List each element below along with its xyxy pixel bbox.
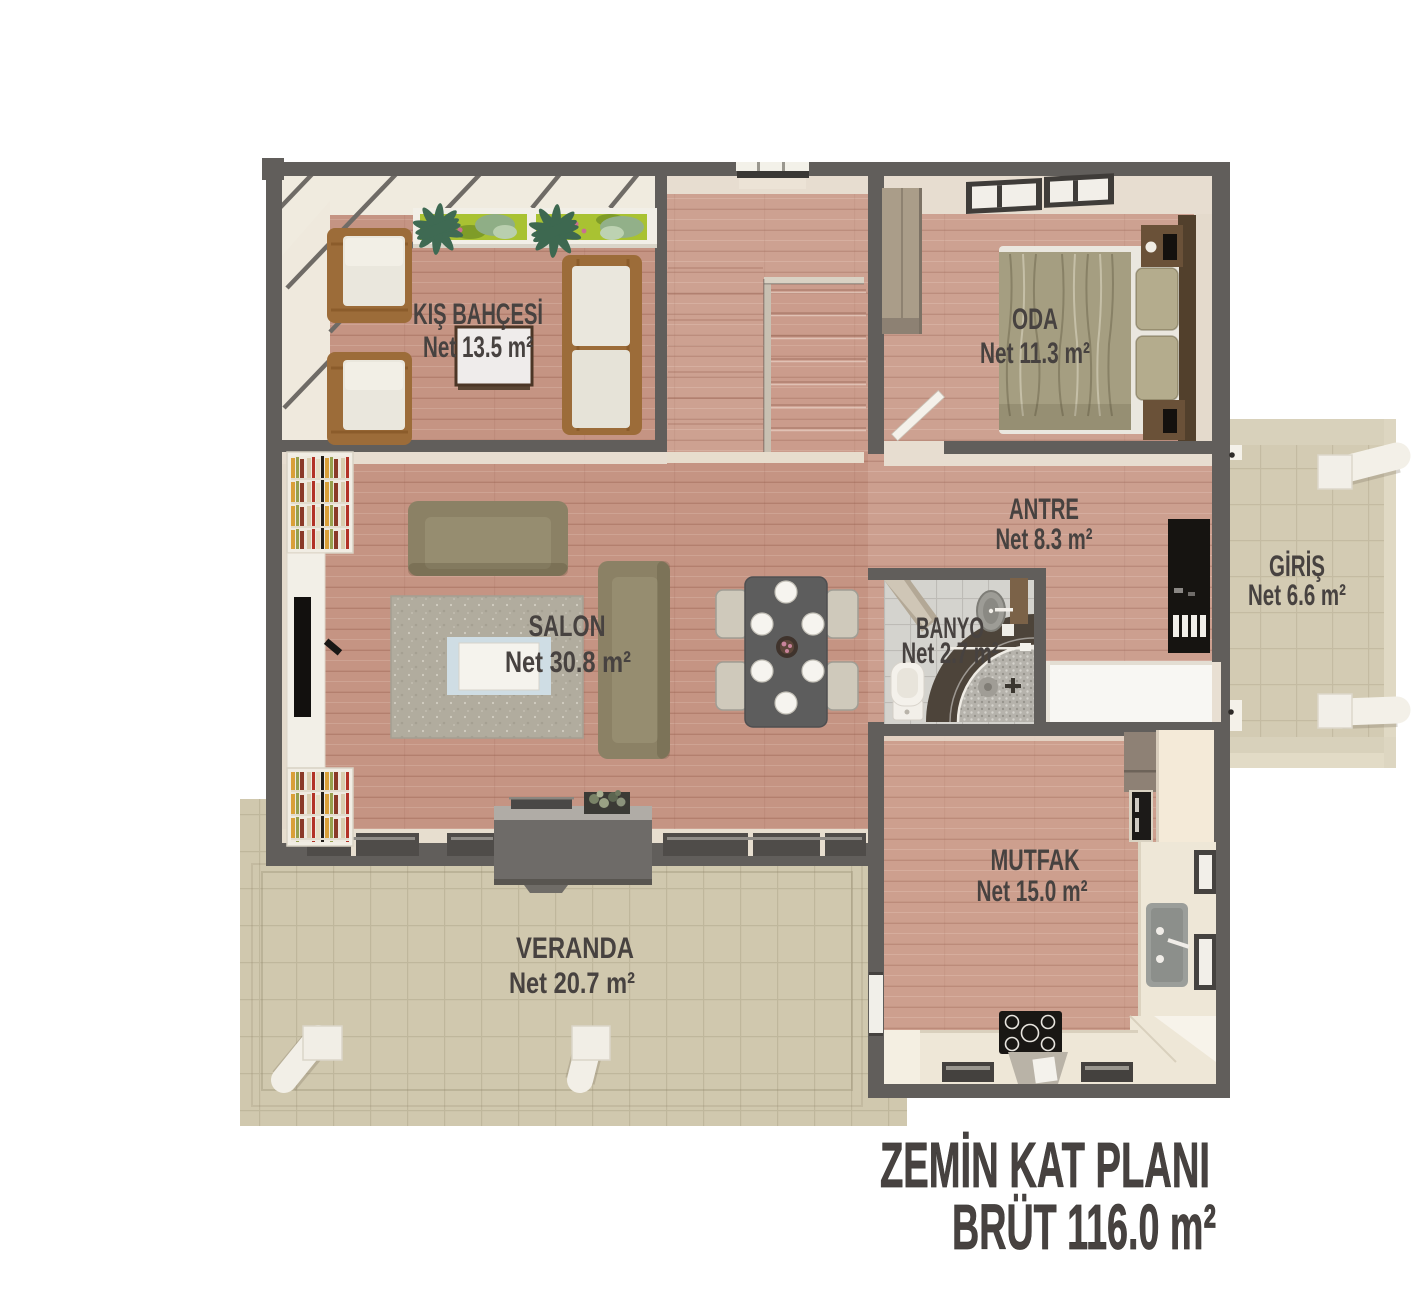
svg-text:BRÜT 116.0 m²: BRÜT 116.0 m² — [952, 1191, 1216, 1263]
svg-text:KIŞ BAHÇESİ: KIŞ BAHÇESİ — [413, 298, 543, 331]
svg-text:MUTFAK: MUTFAK — [991, 844, 1080, 877]
svg-text:Net 11.3 m²: Net 11.3 m² — [980, 337, 1090, 370]
svg-text:Net 15.0 m²: Net 15.0 m² — [977, 875, 1088, 908]
svg-text:Net 8.3 m²: Net 8.3 m² — [996, 523, 1093, 556]
svg-text:Net 6.6 m²: Net 6.6 m² — [1248, 579, 1346, 612]
svg-text:Net 2.7 m²: Net 2.7 m² — [902, 637, 999, 670]
svg-text:SALON: SALON — [529, 610, 606, 643]
svg-text:Net 30.8 m²: Net 30.8 m² — [505, 646, 631, 679]
svg-text:Net 13.5 m²: Net 13.5 m² — [423, 331, 533, 364]
svg-text:ODA: ODA — [1012, 303, 1058, 336]
svg-text:VERANDA: VERANDA — [516, 932, 634, 965]
svg-text:Net 20.7 m²: Net 20.7 m² — [509, 967, 635, 1000]
svg-text:ANTRE: ANTRE — [1009, 493, 1079, 526]
